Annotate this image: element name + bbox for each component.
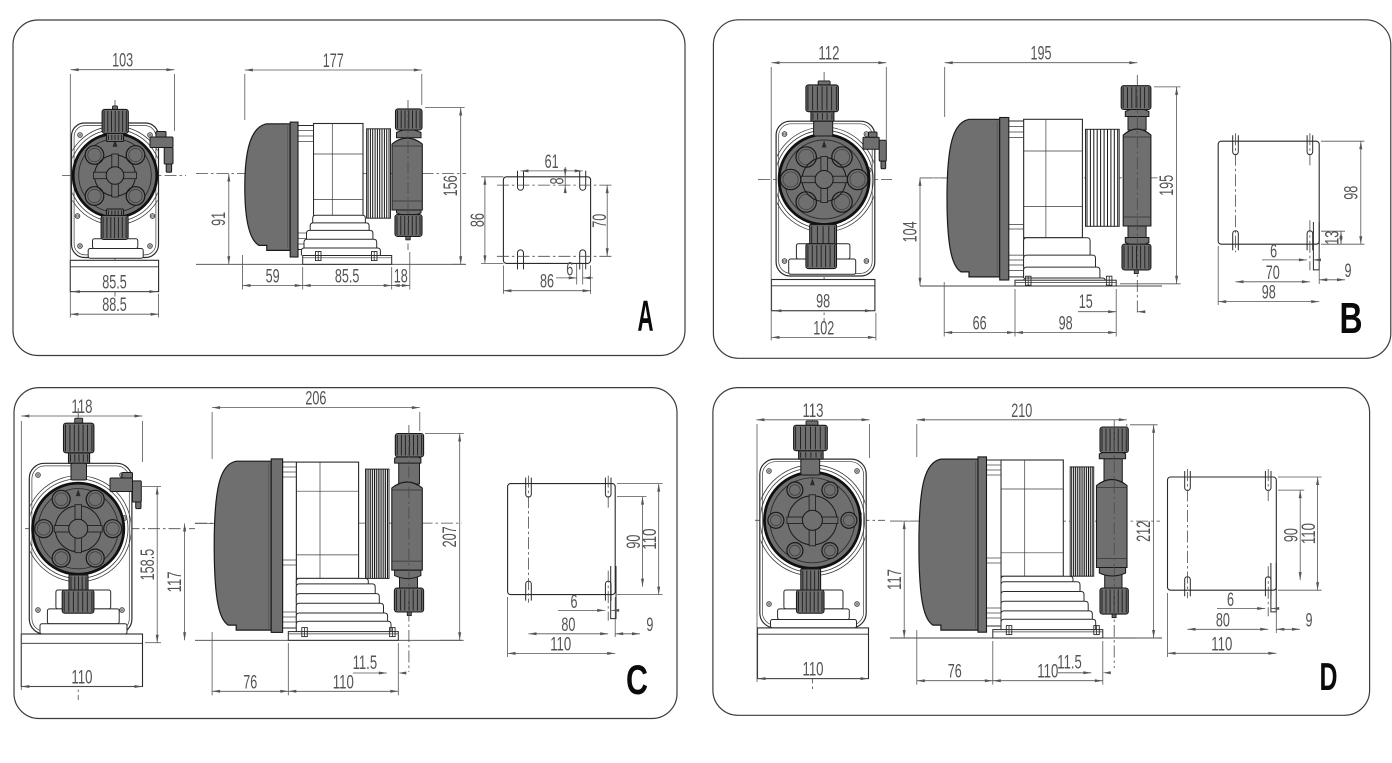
svg-text:11.5: 11.5 <box>1057 652 1082 673</box>
svg-text:59: 59 <box>266 267 280 288</box>
svg-text:6: 6 <box>566 259 573 280</box>
svg-text:104: 104 <box>901 221 922 242</box>
svg-text:177: 177 <box>323 51 344 72</box>
svg-text:156: 156 <box>441 175 462 196</box>
svg-text:117: 117 <box>165 571 186 592</box>
svg-text:158.5: 158.5 <box>138 549 159 581</box>
svg-text:110: 110 <box>550 634 571 655</box>
svg-text:80: 80 <box>561 615 575 636</box>
svg-text:98: 98 <box>1342 186 1363 200</box>
svg-text:C: C <box>626 656 648 703</box>
svg-text:11.5: 11.5 <box>353 653 378 674</box>
svg-text:102: 102 <box>813 318 834 339</box>
svg-text:6: 6 <box>1270 241 1277 262</box>
svg-text:118: 118 <box>71 397 92 418</box>
svg-text:206: 206 <box>305 389 326 410</box>
svg-text:6: 6 <box>571 592 578 613</box>
svg-text:110: 110 <box>803 660 824 681</box>
svg-text:6: 6 <box>1227 590 1234 611</box>
svg-text:86: 86 <box>468 213 489 227</box>
svg-text:B: B <box>1340 294 1363 343</box>
svg-text:13: 13 <box>1323 231 1344 245</box>
svg-text:195: 195 <box>1157 175 1178 196</box>
svg-text:110: 110 <box>333 672 354 693</box>
svg-text:117: 117 <box>885 569 906 590</box>
svg-text:98: 98 <box>1262 283 1276 304</box>
svg-text:207: 207 <box>440 526 461 547</box>
svg-text:8: 8 <box>548 178 569 185</box>
svg-text:15: 15 <box>1079 292 1093 313</box>
svg-text:110: 110 <box>1037 662 1058 683</box>
svg-text:103: 103 <box>112 51 133 72</box>
svg-text:76: 76 <box>243 672 257 693</box>
svg-text:70: 70 <box>590 214 611 228</box>
svg-text:113: 113 <box>803 401 824 422</box>
svg-text:70: 70 <box>1266 263 1280 284</box>
svg-text:80: 80 <box>1216 610 1230 631</box>
svg-text:18: 18 <box>394 267 408 288</box>
svg-text:110: 110 <box>640 529 661 550</box>
svg-text:98: 98 <box>1059 314 1073 335</box>
svg-text:195: 195 <box>1031 44 1052 65</box>
svg-text:9: 9 <box>646 615 653 636</box>
svg-text:85.5: 85.5 <box>335 267 360 288</box>
svg-text:112: 112 <box>818 44 839 65</box>
svg-text:88.5: 88.5 <box>102 295 127 316</box>
svg-text:110: 110 <box>1299 523 1320 544</box>
svg-text:61: 61 <box>545 152 559 173</box>
svg-text:66: 66 <box>973 314 987 335</box>
svg-text:98: 98 <box>816 292 830 313</box>
svg-text:76: 76 <box>948 662 962 683</box>
svg-text:85.5: 85.5 <box>102 273 127 294</box>
svg-text:86: 86 <box>540 272 554 293</box>
svg-text:210: 210 <box>1011 401 1032 422</box>
svg-text:91: 91 <box>209 212 230 226</box>
svg-text:110: 110 <box>71 668 92 689</box>
svg-text:212: 212 <box>1134 521 1155 542</box>
svg-text:9: 9 <box>1345 261 1352 282</box>
svg-text:D: D <box>1320 656 1338 699</box>
svg-text:A: A <box>638 292 654 341</box>
svg-text:110: 110 <box>1211 634 1232 655</box>
svg-text:9: 9 <box>1306 610 1313 631</box>
